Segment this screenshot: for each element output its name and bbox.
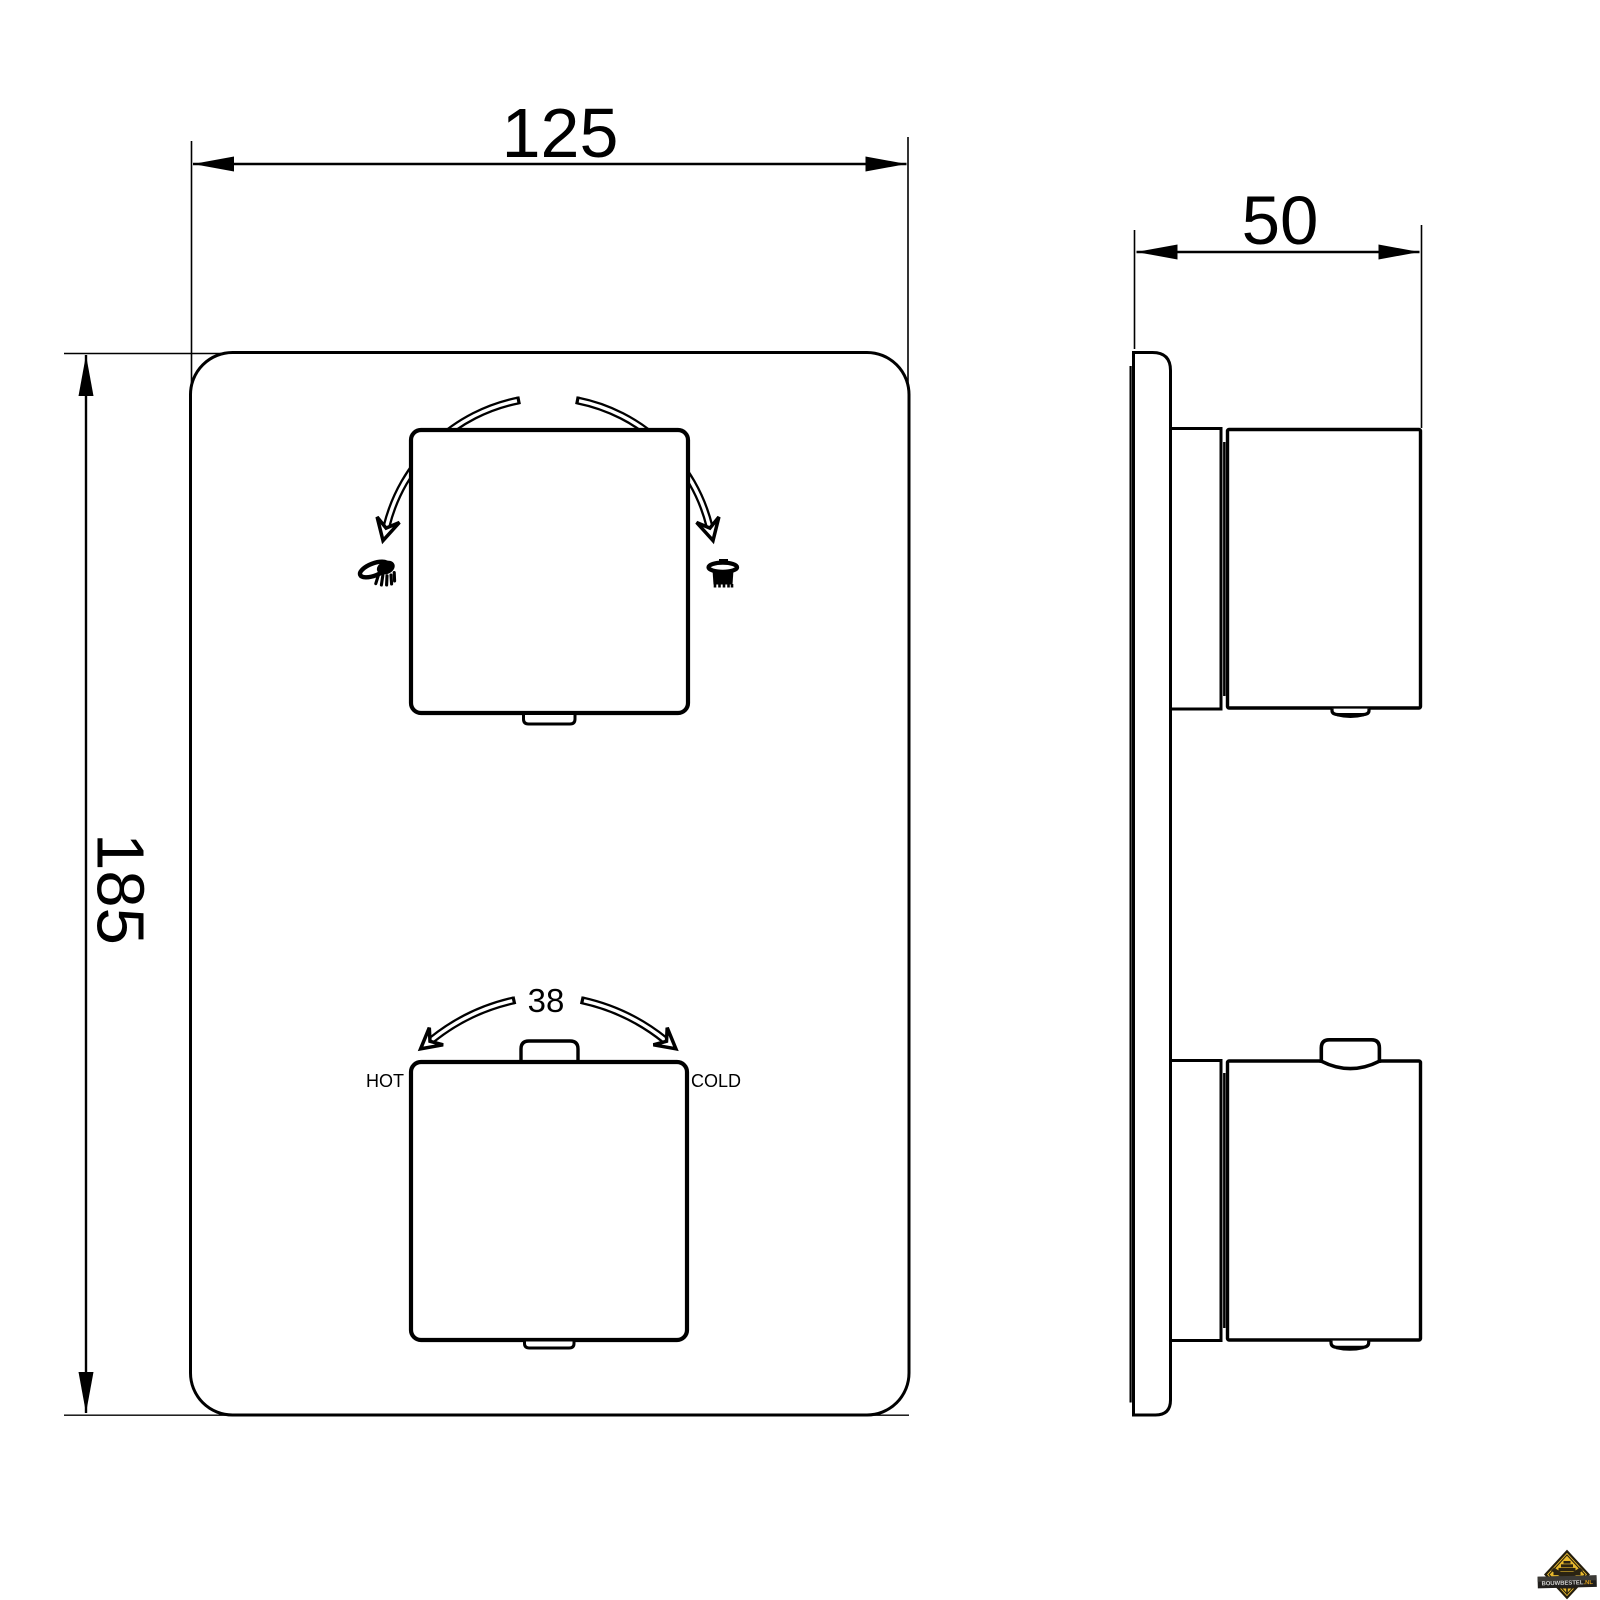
svg-text:HOT: HOT bbox=[366, 1071, 404, 1091]
svg-text:COLD: COLD bbox=[691, 1071, 741, 1091]
svg-text:125: 125 bbox=[502, 94, 619, 172]
svg-text:50: 50 bbox=[1242, 182, 1319, 259]
svg-text:185: 185 bbox=[83, 833, 158, 945]
svg-text:38: 38 bbox=[528, 982, 565, 1019]
